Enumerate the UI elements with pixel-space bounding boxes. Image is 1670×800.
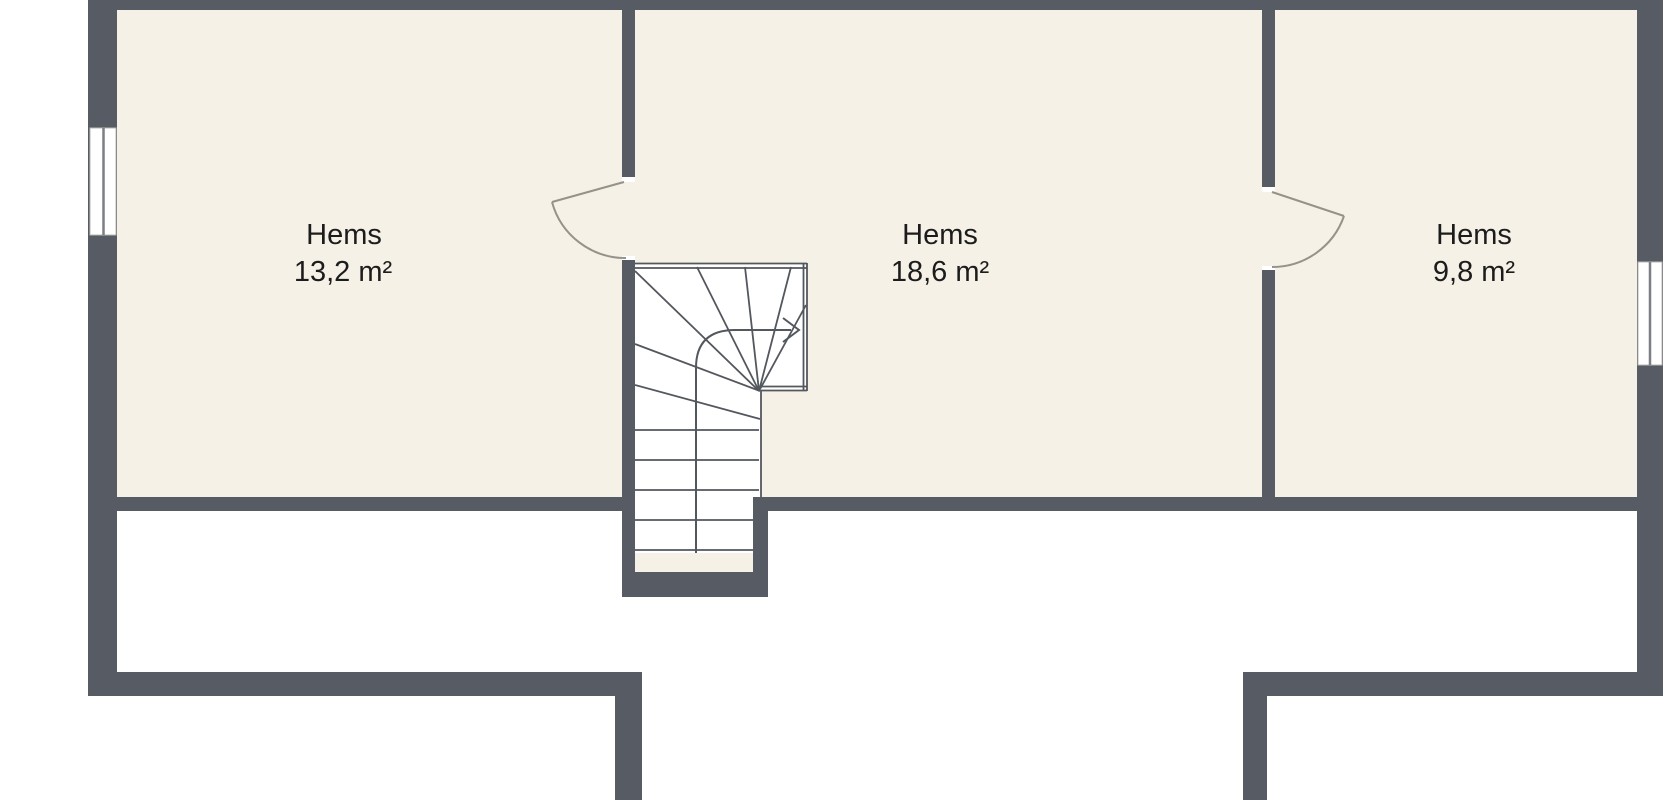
wall-stair-bottom — [622, 572, 768, 597]
room-name: Hems — [306, 219, 382, 251]
wall-bottom-right-horizontal — [1243, 672, 1663, 696]
door-jamb-cap — [622, 177, 635, 182]
window-left[interactable] — [90, 128, 116, 235]
wall-divider-left-lower — [622, 256, 635, 597]
wall-top-exterior — [88, 0, 1663, 10]
staircase-landing — [635, 553, 753, 572]
floor-plan-page: Hems 13,2 m² Hems 18,6 m² Hems 9,8 m² — [0, 0, 1670, 800]
room-name: Hems — [902, 219, 978, 251]
room-area: 9,8 m² — [1433, 256, 1516, 288]
room-area: 13,2 m² — [294, 256, 393, 288]
wall-bottom-left-horizontal — [88, 672, 642, 696]
room-area: 18,6 m² — [891, 256, 990, 288]
room-name: Hems — [1436, 219, 1512, 251]
floor-plan-canvas: Hems 13,2 m² Hems 18,6 m² Hems 9,8 m² — [0, 0, 1670, 800]
wall-divider-left-upper — [622, 10, 635, 177]
wall-bottom-right-vertical — [1243, 672, 1267, 800]
door-jamb-cap — [1262, 187, 1275, 192]
wall-room-bottom-left — [117, 497, 622, 511]
wall-room-bottom-right — [753, 497, 1637, 511]
wall-divider-right-upper — [1262, 10, 1275, 187]
room-hems-left[interactable] — [117, 10, 622, 497]
wall-divider-right-lower — [1262, 266, 1275, 511]
window-right[interactable] — [1638, 262, 1662, 365]
wall-left-exterior — [88, 0, 117, 696]
wall-bottom-left-vertical — [615, 672, 642, 800]
room-hems-right[interactable] — [1275, 10, 1637, 497]
